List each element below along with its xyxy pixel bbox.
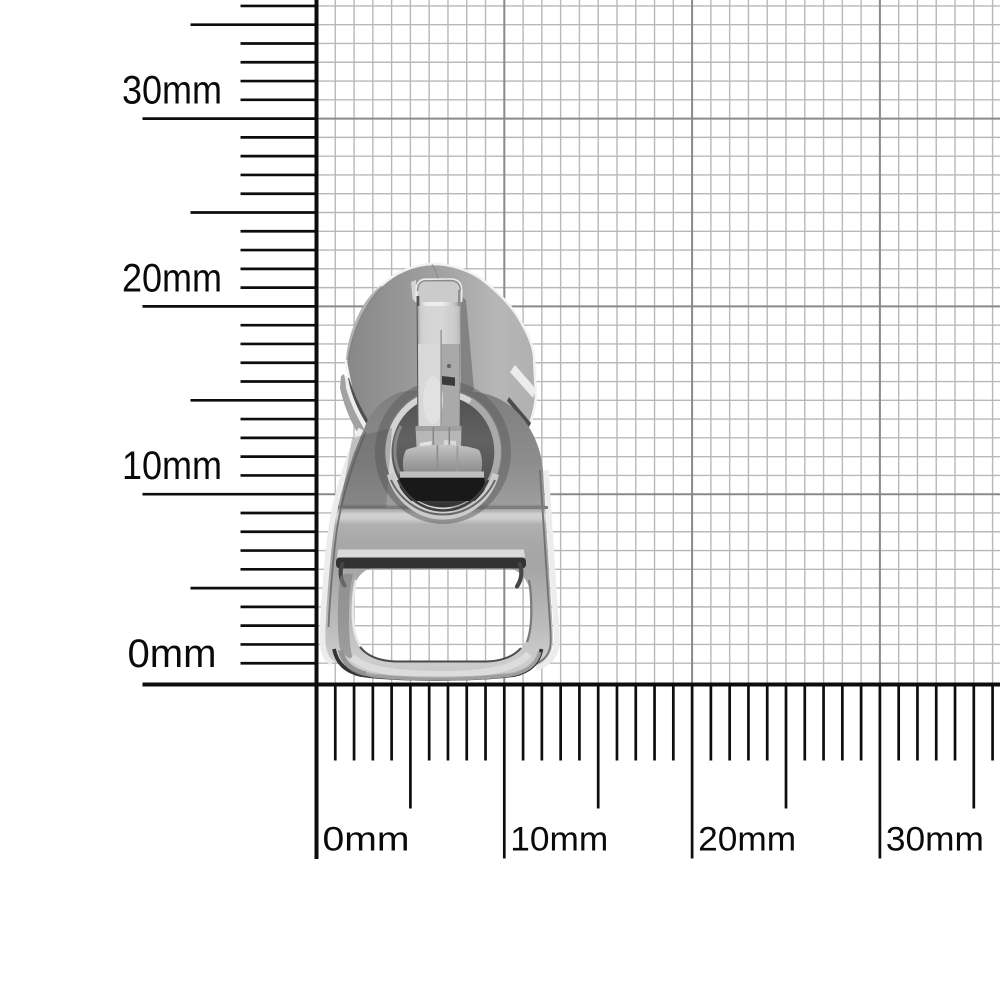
svg-text:0mm: 0mm	[128, 632, 217, 676]
svg-text:10mm: 10mm	[510, 821, 608, 859]
svg-text:0mm: 0mm	[323, 821, 410, 859]
svg-text:30mm: 30mm	[886, 821, 984, 859]
svg-text:20mm: 20mm	[698, 821, 796, 859]
svg-text:30mm: 30mm	[122, 69, 222, 113]
svg-text:10mm: 10mm	[122, 444, 222, 488]
svg-text:20mm: 20mm	[122, 256, 222, 300]
